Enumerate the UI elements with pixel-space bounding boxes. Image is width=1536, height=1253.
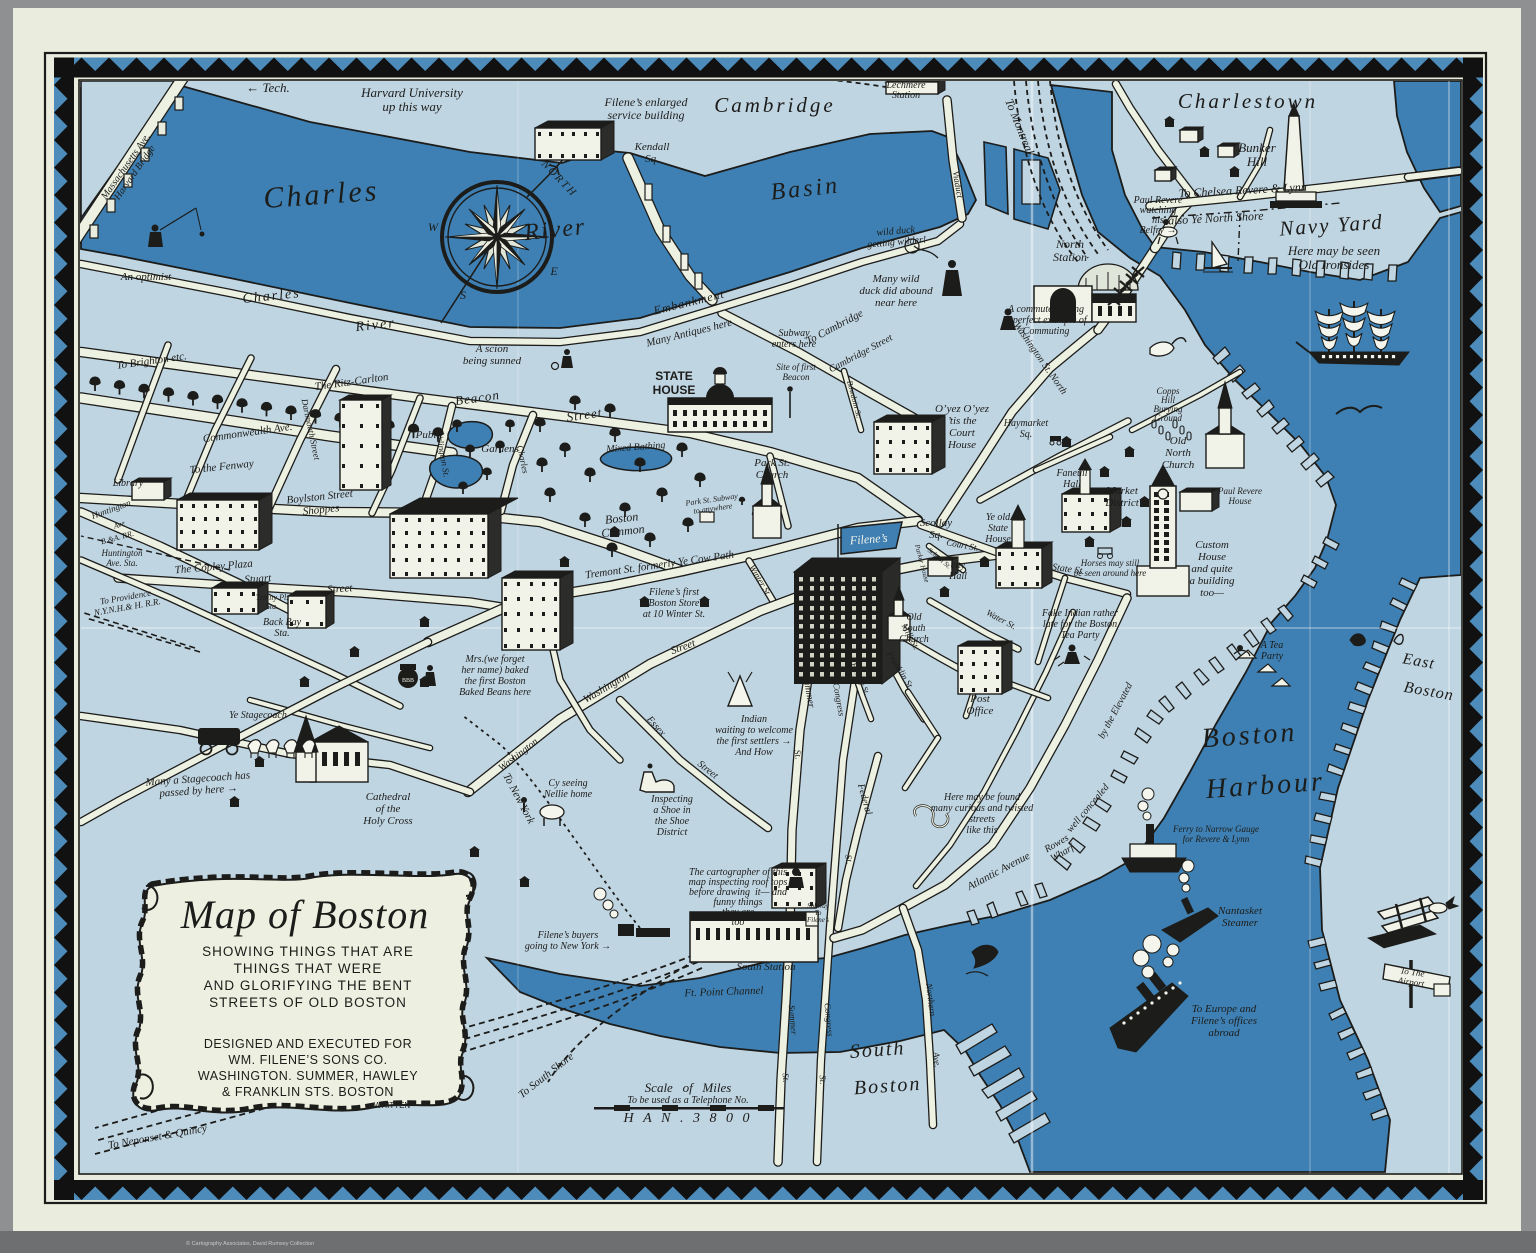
svg-text:MarketDistrict: MarketDistrict [1104, 485, 1140, 509]
svg-text:HuntingtonAve. Sta.: HuntingtonAve. Sta. [100, 548, 143, 568]
svg-text:← Tech.: ← Tech. [246, 80, 290, 95]
svg-text:Map of Boston: Map of Boston [180, 892, 430, 937]
svg-text:South: South [849, 1037, 906, 1063]
svg-text:Ye oldStateHouse: Ye oldStateHouse [984, 512, 1011, 545]
svg-text:H A N . 3 8 0 0: H A N . 3 8 0 0 [623, 1111, 753, 1126]
svg-text:Cy seeingNellie home: Cy seeingNellie home [543, 778, 593, 800]
svg-text:Here may be seenOld Ironsides: Here may be seenOld Ironsides [1287, 243, 1380, 272]
svg-text:Library: Library [112, 478, 144, 489]
svg-text:Inspectinga Shoe inthe ShoeDis: Inspectinga Shoe inthe ShoeDistrict [650, 794, 693, 838]
svg-text:E: E [549, 264, 558, 278]
svg-text:Boston: Boston [853, 1073, 922, 1100]
svg-text:BBB: BBB [402, 678, 414, 684]
svg-text:To be used as a Telephone No.: To be used as a Telephone No. [627, 1095, 748, 1106]
svg-text:St.: St. [792, 749, 803, 760]
svg-text:St.: St. [781, 1073, 792, 1083]
svg-text:Ye Stagecoach: Ye Stagecoach [229, 710, 287, 721]
svg-text:Paul ReverewatchinghisBelfry →: Paul ReverewatchinghisBelfry → [1133, 195, 1183, 236]
svg-text:S: S [460, 288, 466, 302]
svg-text:W: W [428, 220, 439, 234]
svg-text:St.: St. [843, 854, 854, 865]
svg-text:A TeaParty: A TeaParty [1260, 640, 1284, 662]
svg-text:St.: St. [818, 1075, 829, 1085]
svg-text:An optimist: An optimist [120, 271, 172, 283]
svg-text:Gardens: Gardens [481, 443, 518, 455]
svg-text:South Station: South Station [737, 961, 796, 973]
svg-text:Filene’s enlargedservice build: Filene’s enlargedservice building [604, 95, 689, 122]
svg-text:Filene’s buyersgoing to New Yo: Filene’s buyersgoing to New York → [525, 930, 611, 952]
svg-text:NantasketSteamer: NantasketSteamer [1217, 905, 1263, 929]
svg-text:·WHITTEN·: ·WHITTEN· [371, 1101, 413, 1110]
svg-text:Filene’s: Filene’s [848, 531, 888, 548]
svg-text:© Cartography Associates, Davi: © Cartography Associates, David Rumsey C… [186, 1240, 314, 1247]
svg-text:To TheAirport: To TheAirport [1396, 965, 1427, 989]
svg-text:Ave.: Ave. [931, 1050, 943, 1067]
svg-text:Ferry to Narrow Gaugefor Reve: Ferry to Narrow Gaugefor Revere & Lynn [1172, 824, 1259, 844]
svg-text:LechmereStation: LechmereStation [885, 80, 926, 101]
svg-text:Cambridge: Cambridge [714, 93, 836, 117]
svg-text:Mrs.(we forgether name) bakedt: Mrs.(we forgether name) bakedthe first B… [459, 654, 531, 698]
svg-text:Filene’s firstBoston Storeat 1: Filene’s firstBoston Storeat 10 Winter S… [643, 587, 705, 620]
svg-text:STATEHOUSE: STATEHOUSE [653, 369, 696, 397]
svg-text:Park St.Church: Park St.Church [753, 457, 789, 481]
svg-text:NorthStation: NorthStation [1053, 237, 1087, 264]
svg-text:Stuart: Stuart [244, 572, 273, 586]
svg-text:Charlestown: Charlestown [1178, 89, 1318, 113]
svg-text:Street: Street [327, 582, 354, 596]
svg-text:Public: Public [415, 429, 445, 441]
svg-text:CoppsHillBuryingGround: CoppsHillBuryingGround [1154, 386, 1183, 423]
svg-text:Scale of Miles: Scale of Miles [645, 1080, 732, 1095]
svg-text:PostOffice: PostOffice [967, 693, 994, 717]
